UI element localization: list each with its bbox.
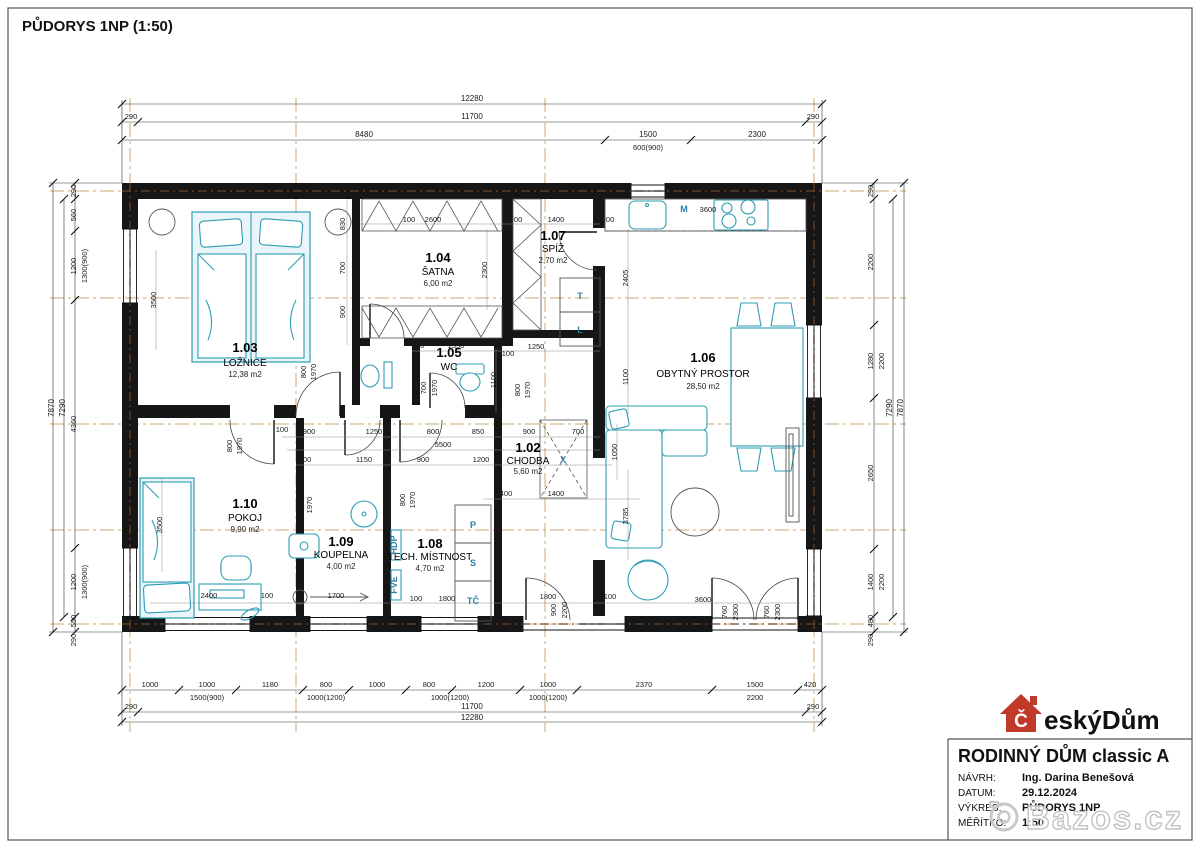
- dim-text: 100: [261, 591, 274, 600]
- dim-text: 850: [472, 427, 485, 436]
- dim-text: 290: [807, 702, 820, 711]
- dining-set: [731, 303, 803, 471]
- cooktop-icon: [714, 200, 768, 230]
- dim-text: 1200: [473, 455, 490, 464]
- tb-row-value: 29.12.2024: [1022, 787, 1078, 799]
- dim-text: 1200: [69, 574, 78, 591]
- dim-text: 700: [338, 262, 347, 275]
- dim-text: 1150: [356, 455, 372, 464]
- wardrobe-hatch-bottom: [362, 306, 502, 338]
- dim-text: 290: [69, 185, 78, 198]
- dim-text: 1000(1200): [307, 693, 346, 702]
- room-area: 6,00 m2: [424, 279, 453, 288]
- dim-text: 3600: [695, 595, 712, 604]
- dim-text: 830: [338, 218, 347, 231]
- project-title: RODINNÝ DŮM classic A: [958, 744, 1169, 766]
- dim-text: 1000: [540, 680, 557, 689]
- room-number: 1.09: [328, 534, 353, 549]
- dim-text: 290: [125, 702, 138, 711]
- dim-text: 5500: [435, 440, 452, 449]
- dim-text: 290: [125, 112, 138, 121]
- dim-text: 11700: [461, 112, 483, 121]
- dim-text: 1400: [548, 215, 565, 224]
- dim-text: 800: [427, 427, 440, 436]
- dim-text: 550: [69, 615, 78, 628]
- equip-label-fridge: L: [577, 325, 583, 335]
- dim-text: 900: [549, 604, 558, 617]
- dim-text: 7290: [885, 399, 894, 417]
- equip-label-hdp: HDP: [389, 535, 399, 554]
- dim-text: 100: [403, 215, 416, 224]
- dim-text: 1800: [540, 592, 557, 601]
- dim-text: 1970: [430, 380, 439, 397]
- dim-text: 800: [225, 440, 234, 453]
- single-bed-icon: [140, 478, 194, 618]
- dim-text: 600(900): [633, 143, 664, 152]
- armchair-icon: [628, 560, 668, 600]
- dim-text: 1200: [478, 680, 495, 689]
- dim-text: 800: [423, 680, 436, 689]
- dim-text: 1000(1200): [431, 693, 470, 702]
- watermark: Bazos.cz: [990, 799, 1183, 836]
- dim-text: 1200: [69, 258, 78, 275]
- dim-text: 2200: [877, 353, 886, 370]
- dim-text: 1970: [235, 438, 244, 455]
- doors: [230, 232, 798, 620]
- room-number: 1.10: [232, 496, 257, 511]
- room-area: 9,90 m2: [231, 525, 260, 534]
- toilet-icon: [456, 364, 484, 391]
- dim-text: 100: [502, 349, 515, 358]
- dim-text: 760: [720, 606, 729, 619]
- dim-text: 1300(900): [80, 248, 89, 283]
- dim-text: 2300: [480, 262, 489, 279]
- room-area: 12,38 m2: [228, 370, 262, 379]
- room-number: 1.03: [232, 340, 257, 355]
- room-name: WC: [441, 362, 458, 373]
- logo: Č eskýDům: [1000, 694, 1160, 735]
- dim-text: 8480: [355, 130, 373, 139]
- kitchen-counter: [605, 199, 806, 231]
- room-number: 1.08: [417, 536, 442, 551]
- dim-text: 2200: [747, 693, 764, 702]
- room-name: LOŽNICE: [223, 356, 267, 369]
- room-area: 5,60 m2: [514, 467, 543, 476]
- watermark-text: Bazos.cz: [1026, 799, 1183, 836]
- dim-text: 900: [417, 455, 430, 464]
- dim-text: 700: [295, 499, 304, 512]
- dim-text: 4360: [69, 416, 78, 433]
- nightstand-icon: [149, 209, 175, 235]
- dim-text: 900: [338, 306, 347, 319]
- dim-text: 11700: [461, 702, 483, 711]
- dim-text: 1250: [366, 427, 383, 436]
- drawing-sheet: PŮDORYS 1NP (1:50): [0, 0, 1200, 848]
- dim-text: 290: [69, 634, 78, 647]
- dim-text: 2400: [201, 591, 218, 600]
- room-number: 1.04: [425, 250, 451, 265]
- dim-text: 900: [523, 427, 536, 436]
- equip-label-oven: T: [577, 291, 583, 301]
- room-area: 4,70 m2: [416, 564, 445, 573]
- dim-text: 3785: [621, 508, 630, 525]
- dim-text: 2200: [877, 574, 886, 591]
- floorplan-canvas: PŮDORYS 1NP (1:50): [0, 0, 1200, 848]
- dim-text: 800: [299, 455, 312, 464]
- dressing-stool: [361, 362, 392, 388]
- equip-label-heatpump: TČ: [467, 595, 479, 606]
- page-title: PŮDORYS 1NP (1:50): [22, 16, 173, 35]
- logo-initial: Č: [1014, 710, 1028, 732]
- dim-text: 290: [807, 112, 820, 121]
- dim-text: 1050: [610, 444, 619, 461]
- room-name: CHODBA: [507, 456, 550, 467]
- dim-text: 3500: [155, 517, 164, 534]
- dim-text: 2300: [773, 604, 782, 621]
- dim-text: 1970: [305, 497, 314, 514]
- tb-row-value: Ing. Darina Benešová: [1022, 772, 1135, 784]
- room-name: OBYTNÝ PROSTOR: [656, 367, 749, 380]
- dim-text: 1100: [621, 369, 630, 385]
- dim-text: 290: [866, 634, 875, 647]
- dim-text: 100: [510, 215, 523, 224]
- desk-icon: [199, 556, 261, 610]
- dim-text: 2200: [560, 602, 569, 619]
- dim-text: 1500: [639, 130, 657, 139]
- dim-text: 7870: [896, 399, 905, 417]
- room-name: TECH. MÍSTNOST: [388, 550, 472, 563]
- room-name: KOUPELNA: [314, 550, 369, 561]
- dim-text: 2200: [866, 254, 875, 271]
- dim-text: 2650: [866, 465, 875, 482]
- equip-label-sink: M: [680, 204, 688, 214]
- dim-text: 3500: [149, 292, 158, 309]
- dim-text: 2370: [636, 680, 653, 689]
- room-number: 1.07: [540, 228, 565, 243]
- dim-text: 1500(900): [190, 693, 225, 702]
- equip-label-washer: P: [470, 520, 476, 530]
- room-number: 1.05: [436, 345, 461, 360]
- dim-text: 7290: [58, 399, 67, 417]
- dim-text: 100: [276, 425, 289, 434]
- room-name: POKOJ: [228, 513, 262, 524]
- dim-text: 480: [866, 615, 875, 628]
- sink-icon: [629, 201, 666, 229]
- dim-text: 800: [513, 384, 522, 397]
- dim-text: 560: [69, 209, 78, 222]
- room-name: ŠATNA: [422, 265, 455, 278]
- sofa-icon: [606, 406, 707, 548]
- dim-text: 800: [299, 366, 308, 379]
- dim-text: 290: [866, 185, 875, 198]
- dim-text: 1970: [523, 382, 532, 399]
- dim-text: 100: [412, 341, 425, 350]
- dim-text: 1000: [199, 680, 216, 689]
- tb-row-label: NÁVRH:: [958, 771, 996, 784]
- dim-text: 2300: [748, 130, 766, 139]
- dim-text: 1700: [328, 591, 345, 600]
- dim-text: 900: [303, 427, 316, 436]
- dim-text: 400: [500, 489, 513, 498]
- equip-label-wardrobe: X: [560, 455, 566, 465]
- dim-text: 2600: [425, 215, 442, 224]
- dim-text: 1250: [528, 342, 545, 351]
- dim-text: 7870: [47, 399, 56, 417]
- dim-text: 3600: [700, 205, 717, 214]
- dim-text: 1280: [866, 353, 875, 370]
- tb-row-label: DATUM:: [958, 788, 996, 799]
- dim-text: 2405: [621, 270, 630, 287]
- dim-text: 100: [410, 594, 423, 603]
- dim-text: 800: [320, 680, 333, 689]
- dim-text: 12280: [461, 94, 484, 103]
- room-number: 1.06: [690, 350, 715, 365]
- dim-text: 1000: [369, 680, 386, 689]
- equip-label-dryer: S: [470, 558, 476, 568]
- dim-text: 100: [604, 592, 617, 601]
- dim-text: 1300(900): [80, 564, 89, 599]
- equip-label-fve: FVE: [389, 576, 399, 594]
- dim-text: 1000: [142, 680, 159, 689]
- dim-text: 100: [602, 215, 615, 224]
- dim-text: 1100: [489, 372, 498, 388]
- dim-text: 2300: [731, 604, 740, 621]
- dim-text: 12280: [461, 713, 484, 722]
- dim-text: 700: [419, 382, 428, 395]
- dim-text: 760: [762, 606, 771, 619]
- dim-text: 800: [398, 494, 407, 507]
- dim-text: 1970: [309, 364, 318, 381]
- dim-text: 1000(1200): [529, 693, 568, 702]
- logo-text: eskýDům: [1044, 705, 1160, 735]
- room-number: 1.02: [515, 440, 540, 455]
- dim-text: 1800: [439, 594, 456, 603]
- dim-text: 1400: [548, 489, 565, 498]
- dim-text: 1400: [866, 574, 875, 591]
- dim-text: 1180: [262, 680, 278, 689]
- room-name: SPÍŽ: [542, 242, 564, 255]
- ottoman-icon: [671, 488, 719, 536]
- room-area: 4,00 m2: [327, 562, 356, 571]
- room-area: 28,50 m2: [686, 382, 720, 391]
- dim-text: 1500: [747, 680, 764, 689]
- dim-text: 1970: [408, 492, 417, 509]
- dim-text: 700: [572, 427, 585, 436]
- room-area: 2,70 m2: [539, 256, 568, 265]
- dim-text: 420: [804, 680, 817, 689]
